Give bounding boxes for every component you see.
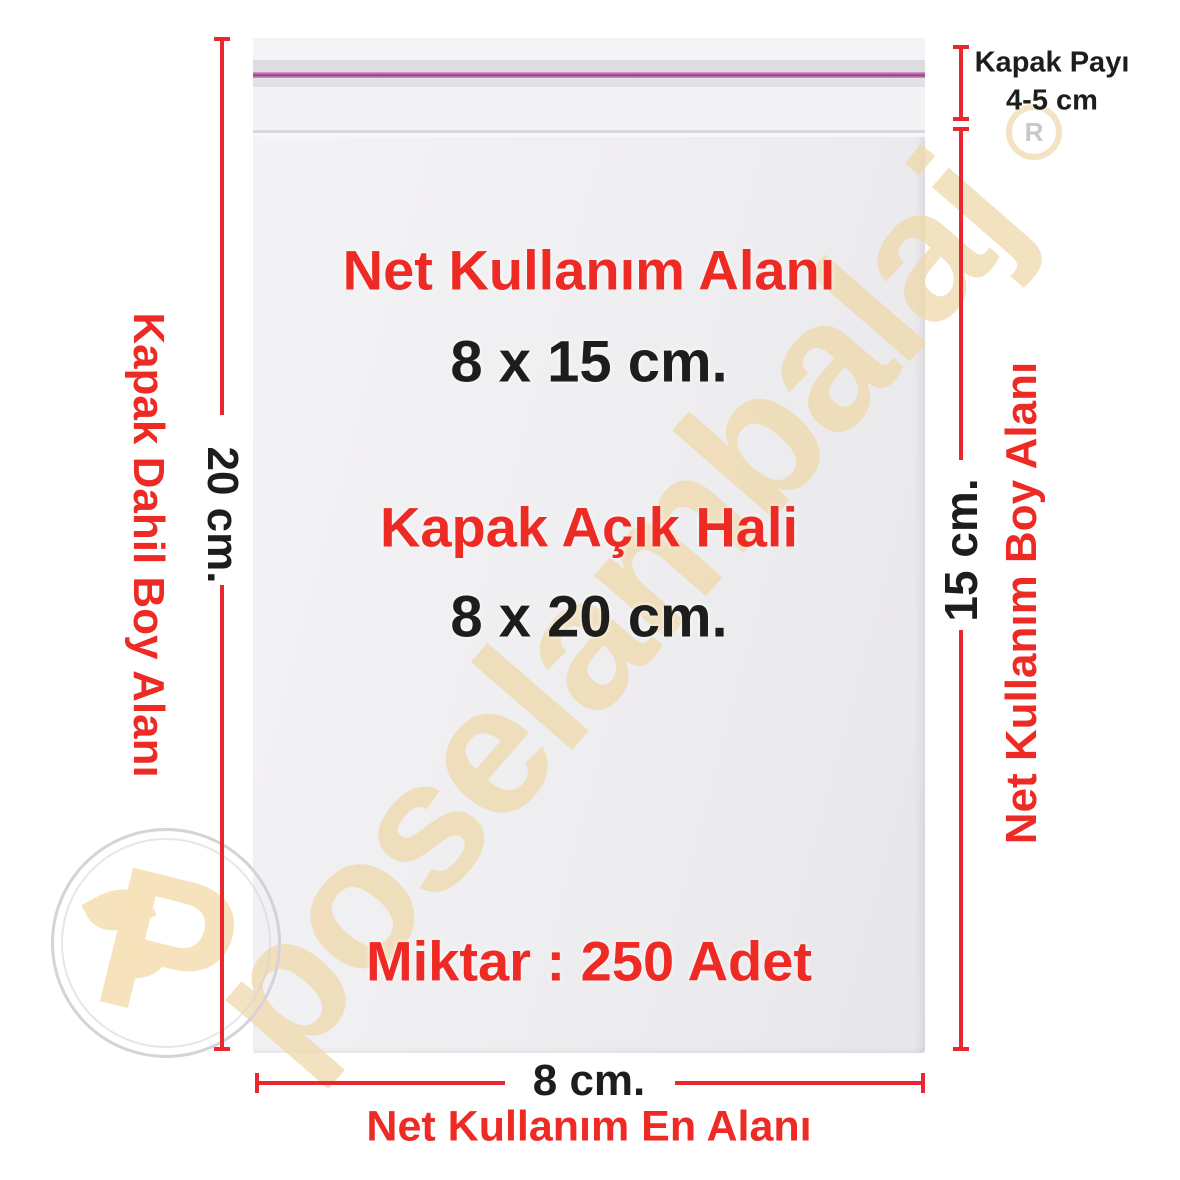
left-dimension-line-upper bbox=[220, 41, 224, 415]
left-dimension-tick-bottom bbox=[214, 1047, 230, 1051]
product-dimension-diagram: poselambalaj R P Net Kullanım Alanı 8 x … bbox=[0, 0, 1180, 1180]
usable-area-size: 8 x 15 cm. bbox=[450, 329, 727, 396]
flap-dimension-line bbox=[959, 49, 963, 117]
bag-flap-body bbox=[253, 87, 925, 130]
right-dimension-tick-bottom bbox=[953, 1047, 969, 1051]
left-dimension-line-lower bbox=[220, 585, 224, 1047]
left-measure-label: Kapak Dahil Boy Alanı bbox=[123, 312, 173, 777]
bag-flap-shadow-lower bbox=[253, 78, 925, 87]
flap-measure-value: 4-5 cm bbox=[1006, 85, 1098, 118]
right-measure-label: Net Kullanım Boy Alanı bbox=[997, 362, 1047, 844]
open-flap-size: 8 x 20 cm. bbox=[450, 584, 727, 651]
bottom-measure-value: 8 cm. bbox=[533, 1056, 646, 1106]
registered-letter: R bbox=[1025, 117, 1044, 148]
bottom-measure-label: Net Kullanım En Alanı bbox=[366, 1103, 811, 1152]
flap-dimension-tick-bottom bbox=[953, 117, 969, 121]
open-flap-title: Kapak Açık Hali bbox=[380, 495, 798, 560]
right-measure-value: 15 cm. bbox=[934, 478, 988, 621]
right-dimension-line-lower bbox=[959, 630, 963, 1047]
usable-area-title: Net Kullanım Alanı bbox=[343, 238, 836, 303]
bag-fold-highlight bbox=[253, 133, 925, 137]
bottom-dimension-tick-right bbox=[921, 1073, 925, 1093]
bag-flap-shadow bbox=[253, 60, 925, 72]
right-dimension-line-upper bbox=[959, 131, 963, 460]
bottom-dimension-line-right bbox=[675, 1081, 923, 1085]
flap-measure-title: Kapak Payı bbox=[975, 47, 1130, 80]
left-measure-value: 20 cm. bbox=[197, 447, 247, 584]
bottom-dimension-line-left bbox=[259, 1081, 505, 1085]
bag-flap bbox=[253, 38, 925, 60]
quantity-label: Miktar : 250 Adet bbox=[366, 929, 812, 994]
